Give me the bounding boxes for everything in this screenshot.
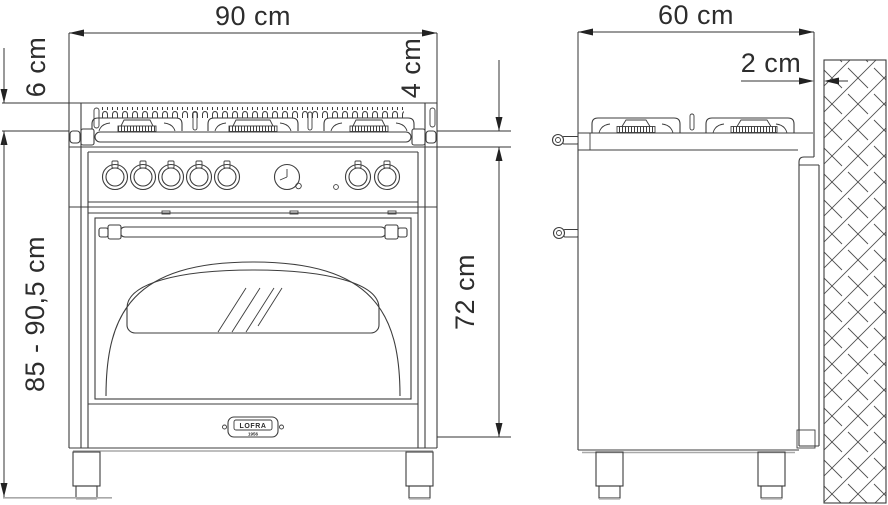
dim-label-body-height: 72 cm — [450, 254, 480, 330]
range-cooker-dimension-diagram: LOFRA 1956 — [0, 0, 888, 505]
dim-label-wall-clearance: 2 cm — [741, 48, 802, 78]
diagram-canvas: LOFRA 1956 — [0, 0, 888, 505]
burner-knob — [131, 161, 156, 190]
foot — [758, 452, 785, 486]
oven-window — [127, 270, 379, 333]
foot-tip — [409, 486, 430, 498]
brand-badge: LOFRA 1956 — [223, 417, 284, 437]
badge-year-text: 1956 — [248, 432, 259, 437]
indicator-light — [334, 185, 339, 190]
door-handle-end — [554, 228, 579, 239]
burner-knob — [215, 161, 240, 190]
back-spacer — [797, 38, 819, 448]
dim-label-depth: 60 cm — [658, 0, 734, 30]
burner-knob — [103, 161, 128, 190]
burner-center — [208, 118, 298, 132]
foot — [406, 452, 433, 486]
side-body-outline — [578, 133, 813, 453]
dim-grate-height: 6 cm — [1, 37, 70, 145]
control-panel — [69, 161, 437, 207]
burner-right — [324, 118, 414, 132]
front-feet — [73, 452, 433, 499]
oven-knob — [375, 161, 400, 190]
front-view: LOFRA 1956 — [69, 103, 437, 499]
side-burners — [592, 114, 794, 133]
dim-body-height: 72 cm — [437, 147, 511, 437]
glass-reflection — [218, 288, 282, 332]
burner-left — [92, 118, 182, 132]
door-arch-contour — [106, 262, 400, 396]
dim-label-grate-height: 6 cm — [21, 37, 51, 98]
foot — [596, 452, 623, 486]
dim-label-overall-height: 85 - 90,5 cm — [20, 236, 50, 392]
oven-door-handle — [99, 225, 407, 239]
wall-section — [824, 60, 886, 503]
oven-knob — [346, 161, 371, 190]
dim-label-hob-rim-height: 4 cm — [396, 38, 426, 99]
foot-tip — [76, 486, 97, 498]
dim-label-front-width: 90 cm — [215, 1, 291, 31]
kick-panel: LOFRA 1956 — [223, 417, 284, 437]
clock-timer — [275, 165, 302, 190]
side-view — [553, 38, 887, 503]
dimension-annotations: 90 cm 6 cm 85 - 90,5 cm 4 cm — [1, 0, 849, 498]
foot-tip — [761, 486, 782, 498]
side-feet — [596, 452, 785, 499]
foot — [73, 452, 100, 486]
burner-knob — [159, 161, 184, 190]
burner-knob — [187, 161, 212, 190]
towel-rail-end — [553, 135, 579, 146]
dim-front-width: 90 cm — [69, 1, 437, 103]
foot-tip — [599, 486, 620, 498]
oven-door — [88, 211, 418, 404]
badge-brand-text: LOFRA — [239, 423, 266, 430]
